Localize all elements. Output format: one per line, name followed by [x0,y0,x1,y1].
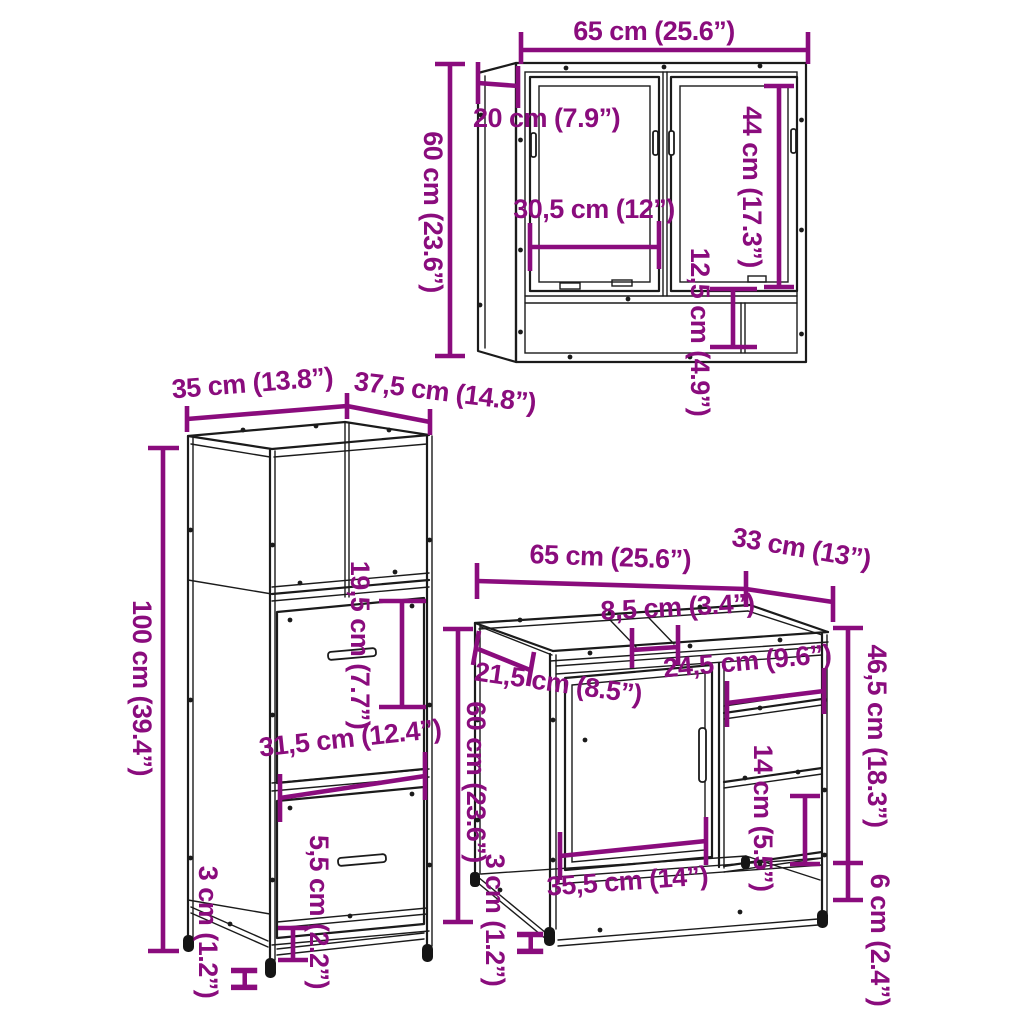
cabinet-foot [817,910,828,928]
sink-foot-height-label: 3 cm (1.2”) [480,854,510,987]
foot-height-marker: H [222,965,264,992]
mirror-height-label: 60 cm (23.6”) [418,131,448,293]
sink-width-label: 65 cm (25.6”) [529,539,692,575]
dim-tall-width: 35 cm (13.8”) [171,362,347,432]
cabinet-foot [183,935,194,952]
sink-shelf-gap-label: 14 cm (5.5”) [748,744,778,891]
dim-sink-shelf-width: 24,5 cm (9.6”) [662,639,833,727]
dim-tall-height: 100 cm (39.4”) [127,448,179,951]
sink-bottom-clearance-label: 6 cm (2.4”) [865,874,895,1007]
tall-opening-height-label: 19,5 cm (7.7”) [345,561,375,730]
mirror-depth-label: 20 cm (7.9”) [473,103,620,133]
door-handle [669,131,674,155]
dim-tall-plinth-height: 5,5 cm (2.2”) [278,835,334,989]
dim-sink-left-depth: 21,5 cm (8.5”) [473,631,644,710]
door-handle [791,129,796,153]
cabinet-foot [470,872,480,887]
door-handle [699,728,706,782]
dim-tall-drawer-width: 31,5 cm (12.4”) [257,714,442,822]
sink-depth-label: 33 cm (13”) [730,522,873,575]
sink-top-rail-width-label: 8,5 cm (3.4”) [600,588,755,626]
sink-shelf-width-label: 24,5 cm (9.6”) [662,639,833,684]
sink-side-height-label: 46,5 cm (18.3”) [862,644,892,827]
dim-mirror-height: 60 cm (23.6”) [418,64,465,356]
cabinet-foot [422,944,433,962]
dim-tall-foot-height: H 3 cm (1.2”) [193,866,264,999]
drawer-handle [338,854,387,866]
dim-sink-shelf-gap: 14 cm (5.5”) [748,744,820,891]
tall-height-label: 100 cm (39.4”) [127,600,157,776]
dim-mirror-door-height: 44 cm (17.3”) [737,86,794,287]
dim-mirror-width: 65 cm (25.6”) [521,16,808,64]
cabinet-foot [265,958,276,978]
dim-tall-opening-height: 19,5 cm (7.7”) [345,561,426,730]
mirror-shelf-height-label: 12,5 cm (4.9”) [685,248,715,417]
mirror-door-height-label: 44 cm (17.3”) [737,106,767,268]
sink-height-label: 60 cm (23.6”) [461,701,491,863]
sink-left-depth-label: 21,5 cm (8.5”) [473,657,644,710]
dim-sink-side-height: 46,5 cm (18.3”) [833,628,892,863]
mirror-door-width-label: 30,5 cm (12”) [513,194,675,224]
furniture-dimension-diagram: 65 cm (25.6”) 20 cm (7.9”) 60 cm (23.6”)… [0,0,1024,1024]
foot-height-marker: H [508,929,550,956]
dim-sink-foot-height: H 3 cm (1.2”) [480,854,550,987]
tall-width-label: 35 cm (13.8”) [171,362,334,405]
dim-sink-bottom-clearance: 6 cm (2.4”) [833,863,895,1006]
door-handle [653,131,658,155]
mirror-width-label: 65 cm (25.6”) [573,16,735,46]
tall-foot-height-label: 3 cm (1.2”) [193,866,223,999]
door-handle [531,133,536,157]
tall-plinth-height-label: 5,5 cm (2.2”) [304,835,334,989]
dim-mirror-shelf-height: 12,5 cm (4.9”) [685,248,757,417]
dim-tall-depth: 37,5 cm (14.8”) [347,366,538,435]
sink-door-width-label: 35,5 cm (14”) [546,860,709,901]
